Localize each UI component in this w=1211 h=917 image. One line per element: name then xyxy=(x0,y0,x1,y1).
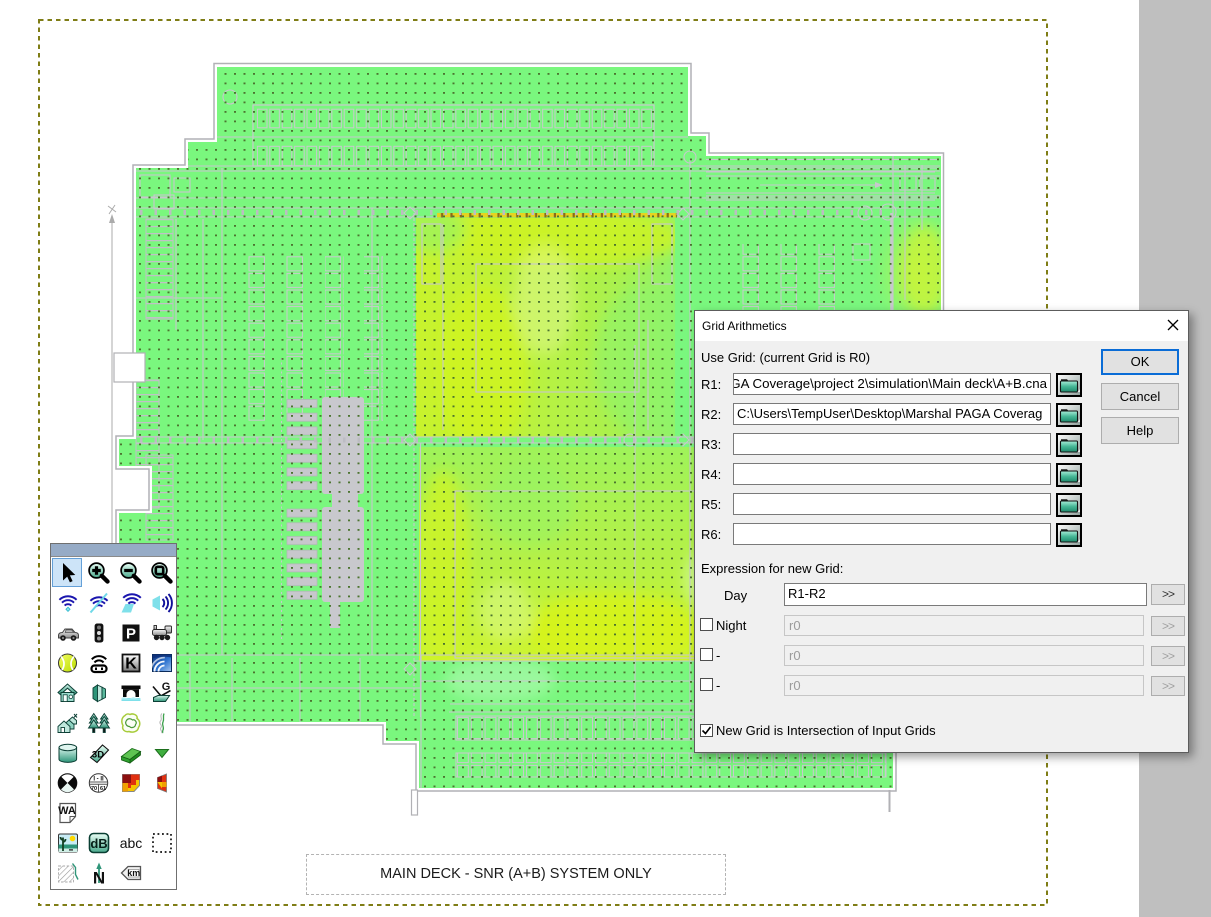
svg-text:dB: dB xyxy=(90,836,107,851)
svg-text:K: K xyxy=(125,656,137,673)
svg-text:P: P xyxy=(125,625,135,642)
svg-text:I - II: I - II xyxy=(93,777,104,783)
svg-text:WA: WA xyxy=(58,805,76,817)
svg-text:3D: 3D xyxy=(92,750,104,761)
svg-text:abc: abc xyxy=(119,835,142,851)
svg-text:61: 61 xyxy=(100,786,106,792)
svg-text:N: N xyxy=(93,869,105,886)
svg-text:70: 70 xyxy=(91,786,97,792)
svg-text:km: km xyxy=(127,868,140,878)
